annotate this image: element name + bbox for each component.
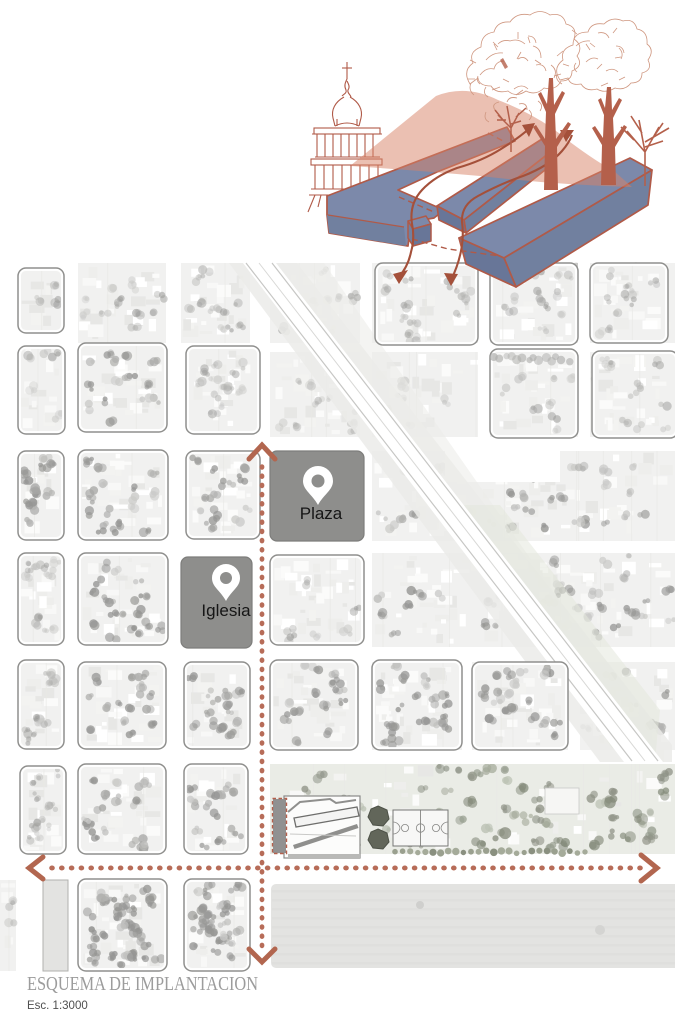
svg-text:Plaza: Plaza bbox=[300, 504, 343, 523]
svg-text:Iglesia: Iglesia bbox=[201, 601, 251, 620]
svg-text:Esc. 1:3000: Esc. 1:3000 bbox=[27, 1000, 88, 1012]
svg-text:ESQUEMA DE IMPLANTACION: ESQUEMA DE IMPLANTACION bbox=[27, 973, 258, 995]
